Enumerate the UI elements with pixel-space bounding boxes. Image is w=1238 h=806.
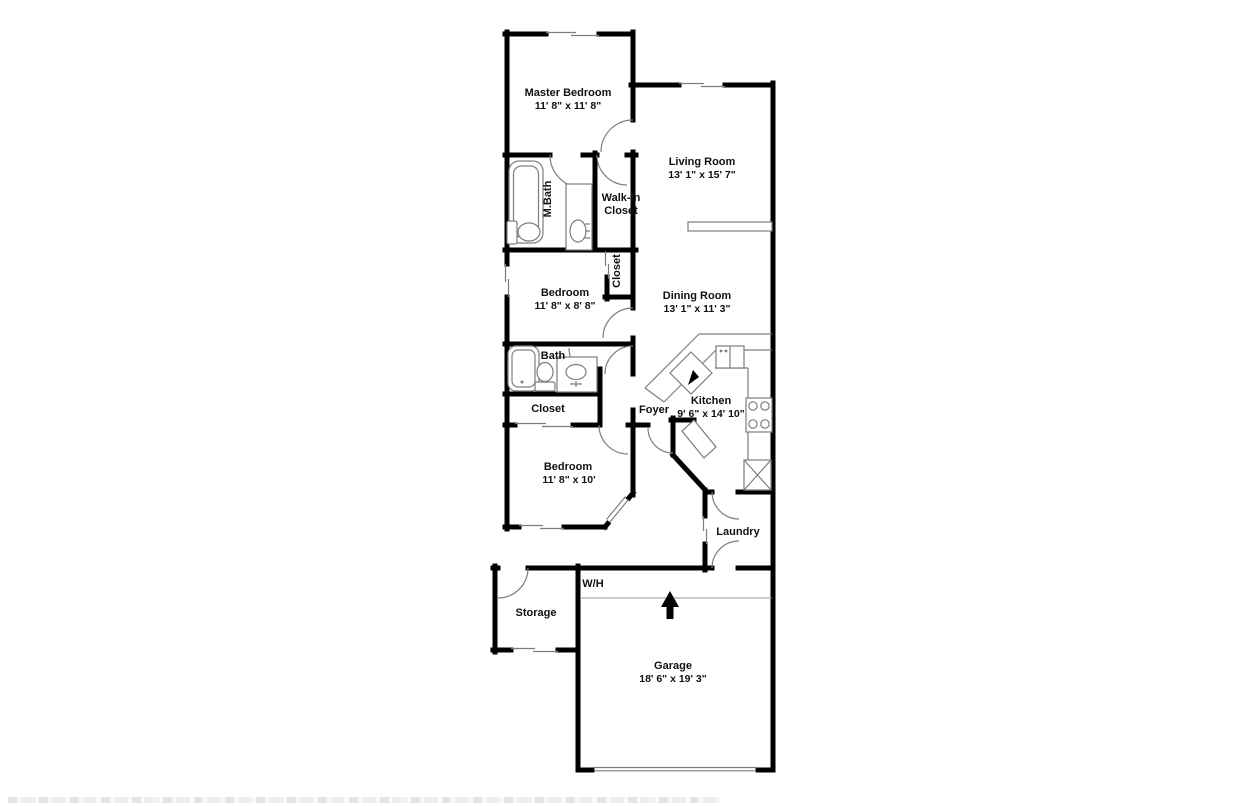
label-living-room: Living Room — [669, 156, 736, 168]
dims-bedroom3: 11' 8" x 10' — [542, 474, 595, 486]
window-bedroom3-diagonal — [607, 497, 629, 523]
label-walkin-closet-1: Walk-In — [602, 192, 641, 204]
kitchen-sink — [716, 346, 744, 368]
door-arc-bedroom3 — [599, 425, 628, 454]
label-dining-room: Dining Room — [663, 290, 732, 302]
label-bedroom2: Bedroom — [541, 287, 590, 299]
bifold-door-laundry — [704, 516, 707, 544]
door-arc-hall — [605, 346, 633, 374]
label-kitchen: Kitchen — [691, 395, 732, 407]
dims-dining-room: 13' 1" x 11' 3" — [664, 303, 731, 315]
label-bath: Bath — [541, 350, 566, 362]
door-arc-bedroom2 — [603, 308, 633, 338]
sliding-door-bedroom3-closet — [515, 424, 573, 427]
garage-door — [592, 768, 758, 771]
plant-ledge — [688, 222, 772, 231]
pantry-x-cabinet — [744, 460, 771, 490]
bath-bathtub — [508, 346, 539, 391]
label-bedroom3: Bedroom — [544, 461, 593, 473]
window-bedroom3 — [519, 526, 564, 529]
bath-toilet — [535, 363, 555, 392]
label-water-heater: W/H — [582, 578, 603, 590]
dims-bedroom2: 11' 8" x 8' 8" — [534, 300, 595, 312]
door-arc-laundry-top — [712, 492, 739, 519]
label-hall-closet: Closet — [531, 403, 565, 415]
floorplan-drawing: Master Bedroom 11' 8" x 11' 8" Living Ro… — [0, 0, 1238, 806]
stove — [746, 398, 772, 432]
entry-door-open-leaf — [682, 420, 716, 458]
label-master-bath: M.Bath — [542, 180, 554, 217]
window-storage — [511, 649, 558, 652]
dims-living-room: 13' 1" x 15' 7" — [668, 169, 736, 181]
window-living-room — [679, 84, 725, 87]
door-arc-master-bedroom — [601, 120, 633, 152]
watermark-strip — [8, 797, 720, 803]
label-foyer: Foyer — [639, 404, 670, 416]
door-arc-walkin-closet — [597, 155, 627, 185]
label-walkin-closet-2: Closet — [604, 205, 638, 217]
door-arc-laundry-bottom — [712, 541, 739, 568]
dims-master-bedroom: 11' 8" x 11' 8" — [535, 100, 601, 112]
label-master-bedroom: Master Bedroom — [525, 87, 612, 99]
floorplan-page: Master Bedroom 11' 8" x 11' 8" Living Ro… — [0, 0, 1238, 806]
label-storage: Storage — [516, 607, 557, 619]
master-vanity-sink — [566, 184, 592, 250]
dims-kitchen: 9' 6" x 14' 10" — [677, 408, 745, 420]
north-arrow-icon — [661, 591, 679, 619]
label-garage: Garage — [654, 660, 692, 672]
window-bedroom2 — [506, 264, 509, 297]
door-arc-foyer — [648, 428, 673, 453]
door-arc-storage — [498, 568, 528, 598]
label-laundry: Laundry — [716, 526, 760, 538]
label-bedroom2-closet: Closet — [611, 254, 623, 288]
fixtures — [507, 161, 772, 619]
bath-vanity-sink — [557, 357, 597, 392]
dims-garage: 18' 6" x 19' 3" — [639, 673, 707, 685]
window-master-bedroom — [546, 33, 599, 36]
door-arc-master-bath — [550, 155, 583, 188]
